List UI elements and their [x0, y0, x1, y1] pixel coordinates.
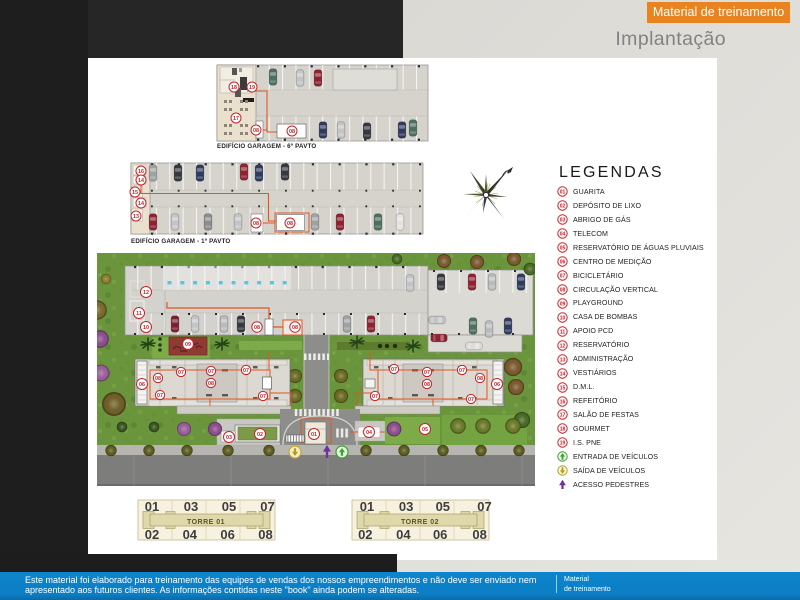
svg-text:12: 12	[560, 343, 566, 349]
svg-text:04: 04	[366, 430, 372, 436]
svg-text:06: 06	[433, 527, 447, 542]
svg-text:10: 10	[143, 325, 149, 331]
svg-text:02: 02	[560, 204, 566, 210]
svg-text:07: 07	[208, 369, 214, 375]
svg-text:08: 08	[472, 527, 486, 542]
svg-text:11: 11	[136, 311, 142, 317]
svg-text:18: 18	[560, 427, 566, 433]
svg-text:13: 13	[133, 214, 139, 220]
svg-text:08: 08	[560, 287, 566, 293]
svg-text:15: 15	[132, 190, 138, 196]
svg-text:08: 08	[254, 325, 260, 331]
svg-text:TORRE 01: TORRE 01	[187, 519, 225, 526]
svg-text:03: 03	[560, 218, 566, 224]
svg-text:07: 07	[178, 370, 184, 376]
svg-text:07: 07	[477, 499, 491, 514]
svg-text:08: 08	[424, 382, 430, 388]
svg-text:06: 06	[494, 382, 500, 388]
svg-text:09: 09	[185, 342, 191, 348]
svg-text:07: 07	[468, 397, 474, 403]
svg-text:08: 08	[292, 325, 298, 331]
svg-text:17: 17	[560, 413, 566, 419]
svg-text:02: 02	[257, 432, 263, 438]
svg-text:10: 10	[560, 315, 566, 321]
svg-text:02: 02	[145, 527, 159, 542]
svg-text:07: 07	[243, 368, 249, 374]
svg-text:07: 07	[391, 367, 397, 373]
svg-text:05: 05	[222, 499, 236, 514]
svg-text:08: 08	[287, 221, 293, 227]
svg-text:18: 18	[231, 85, 237, 91]
svg-text:06: 06	[220, 527, 234, 542]
svg-text:08: 08	[258, 527, 272, 542]
svg-text:17: 17	[233, 116, 239, 122]
svg-text:01: 01	[311, 432, 317, 438]
svg-text:08: 08	[155, 376, 161, 382]
svg-text:07: 07	[157, 393, 163, 399]
svg-text:11: 11	[560, 329, 566, 335]
svg-text:15: 15	[560, 385, 566, 391]
svg-text:03: 03	[399, 499, 413, 514]
svg-text:19: 19	[560, 441, 566, 447]
svg-text:05: 05	[560, 246, 566, 252]
svg-text:09: 09	[560, 301, 566, 307]
svg-text:14: 14	[560, 371, 566, 377]
svg-text:04: 04	[560, 232, 566, 238]
svg-text:06: 06	[139, 382, 145, 388]
svg-text:08: 08	[208, 381, 214, 387]
svg-text:16: 16	[138, 169, 144, 175]
svg-text:08: 08	[253, 128, 259, 134]
svg-text:05: 05	[436, 499, 450, 514]
svg-text:08: 08	[253, 221, 259, 227]
svg-text:07: 07	[260, 499, 274, 514]
svg-text:02: 02	[358, 527, 372, 542]
svg-text:07: 07	[560, 273, 566, 279]
svg-text:03: 03	[184, 499, 198, 514]
svg-text:01: 01	[560, 190, 566, 196]
svg-text:13: 13	[560, 357, 566, 363]
svg-text:14: 14	[138, 201, 144, 207]
svg-text:01: 01	[145, 499, 159, 514]
svg-text:14: 14	[138, 178, 144, 184]
svg-text:04: 04	[396, 527, 411, 542]
svg-text:04: 04	[183, 527, 198, 542]
svg-text:TORRE 02: TORRE 02	[401, 519, 439, 526]
svg-text:06: 06	[560, 260, 566, 266]
svg-text:07: 07	[372, 394, 378, 400]
svg-text:08: 08	[289, 129, 295, 135]
svg-text:19: 19	[249, 85, 255, 91]
svg-text:01: 01	[360, 499, 374, 514]
svg-text:08: 08	[477, 376, 483, 382]
svg-text:07: 07	[424, 370, 430, 376]
svg-text:16: 16	[560, 399, 566, 405]
svg-text:05: 05	[422, 427, 428, 433]
svg-text:07: 07	[459, 368, 465, 374]
svg-text:03: 03	[226, 435, 232, 441]
svg-text:07: 07	[260, 394, 266, 400]
svg-text:12: 12	[143, 290, 149, 296]
